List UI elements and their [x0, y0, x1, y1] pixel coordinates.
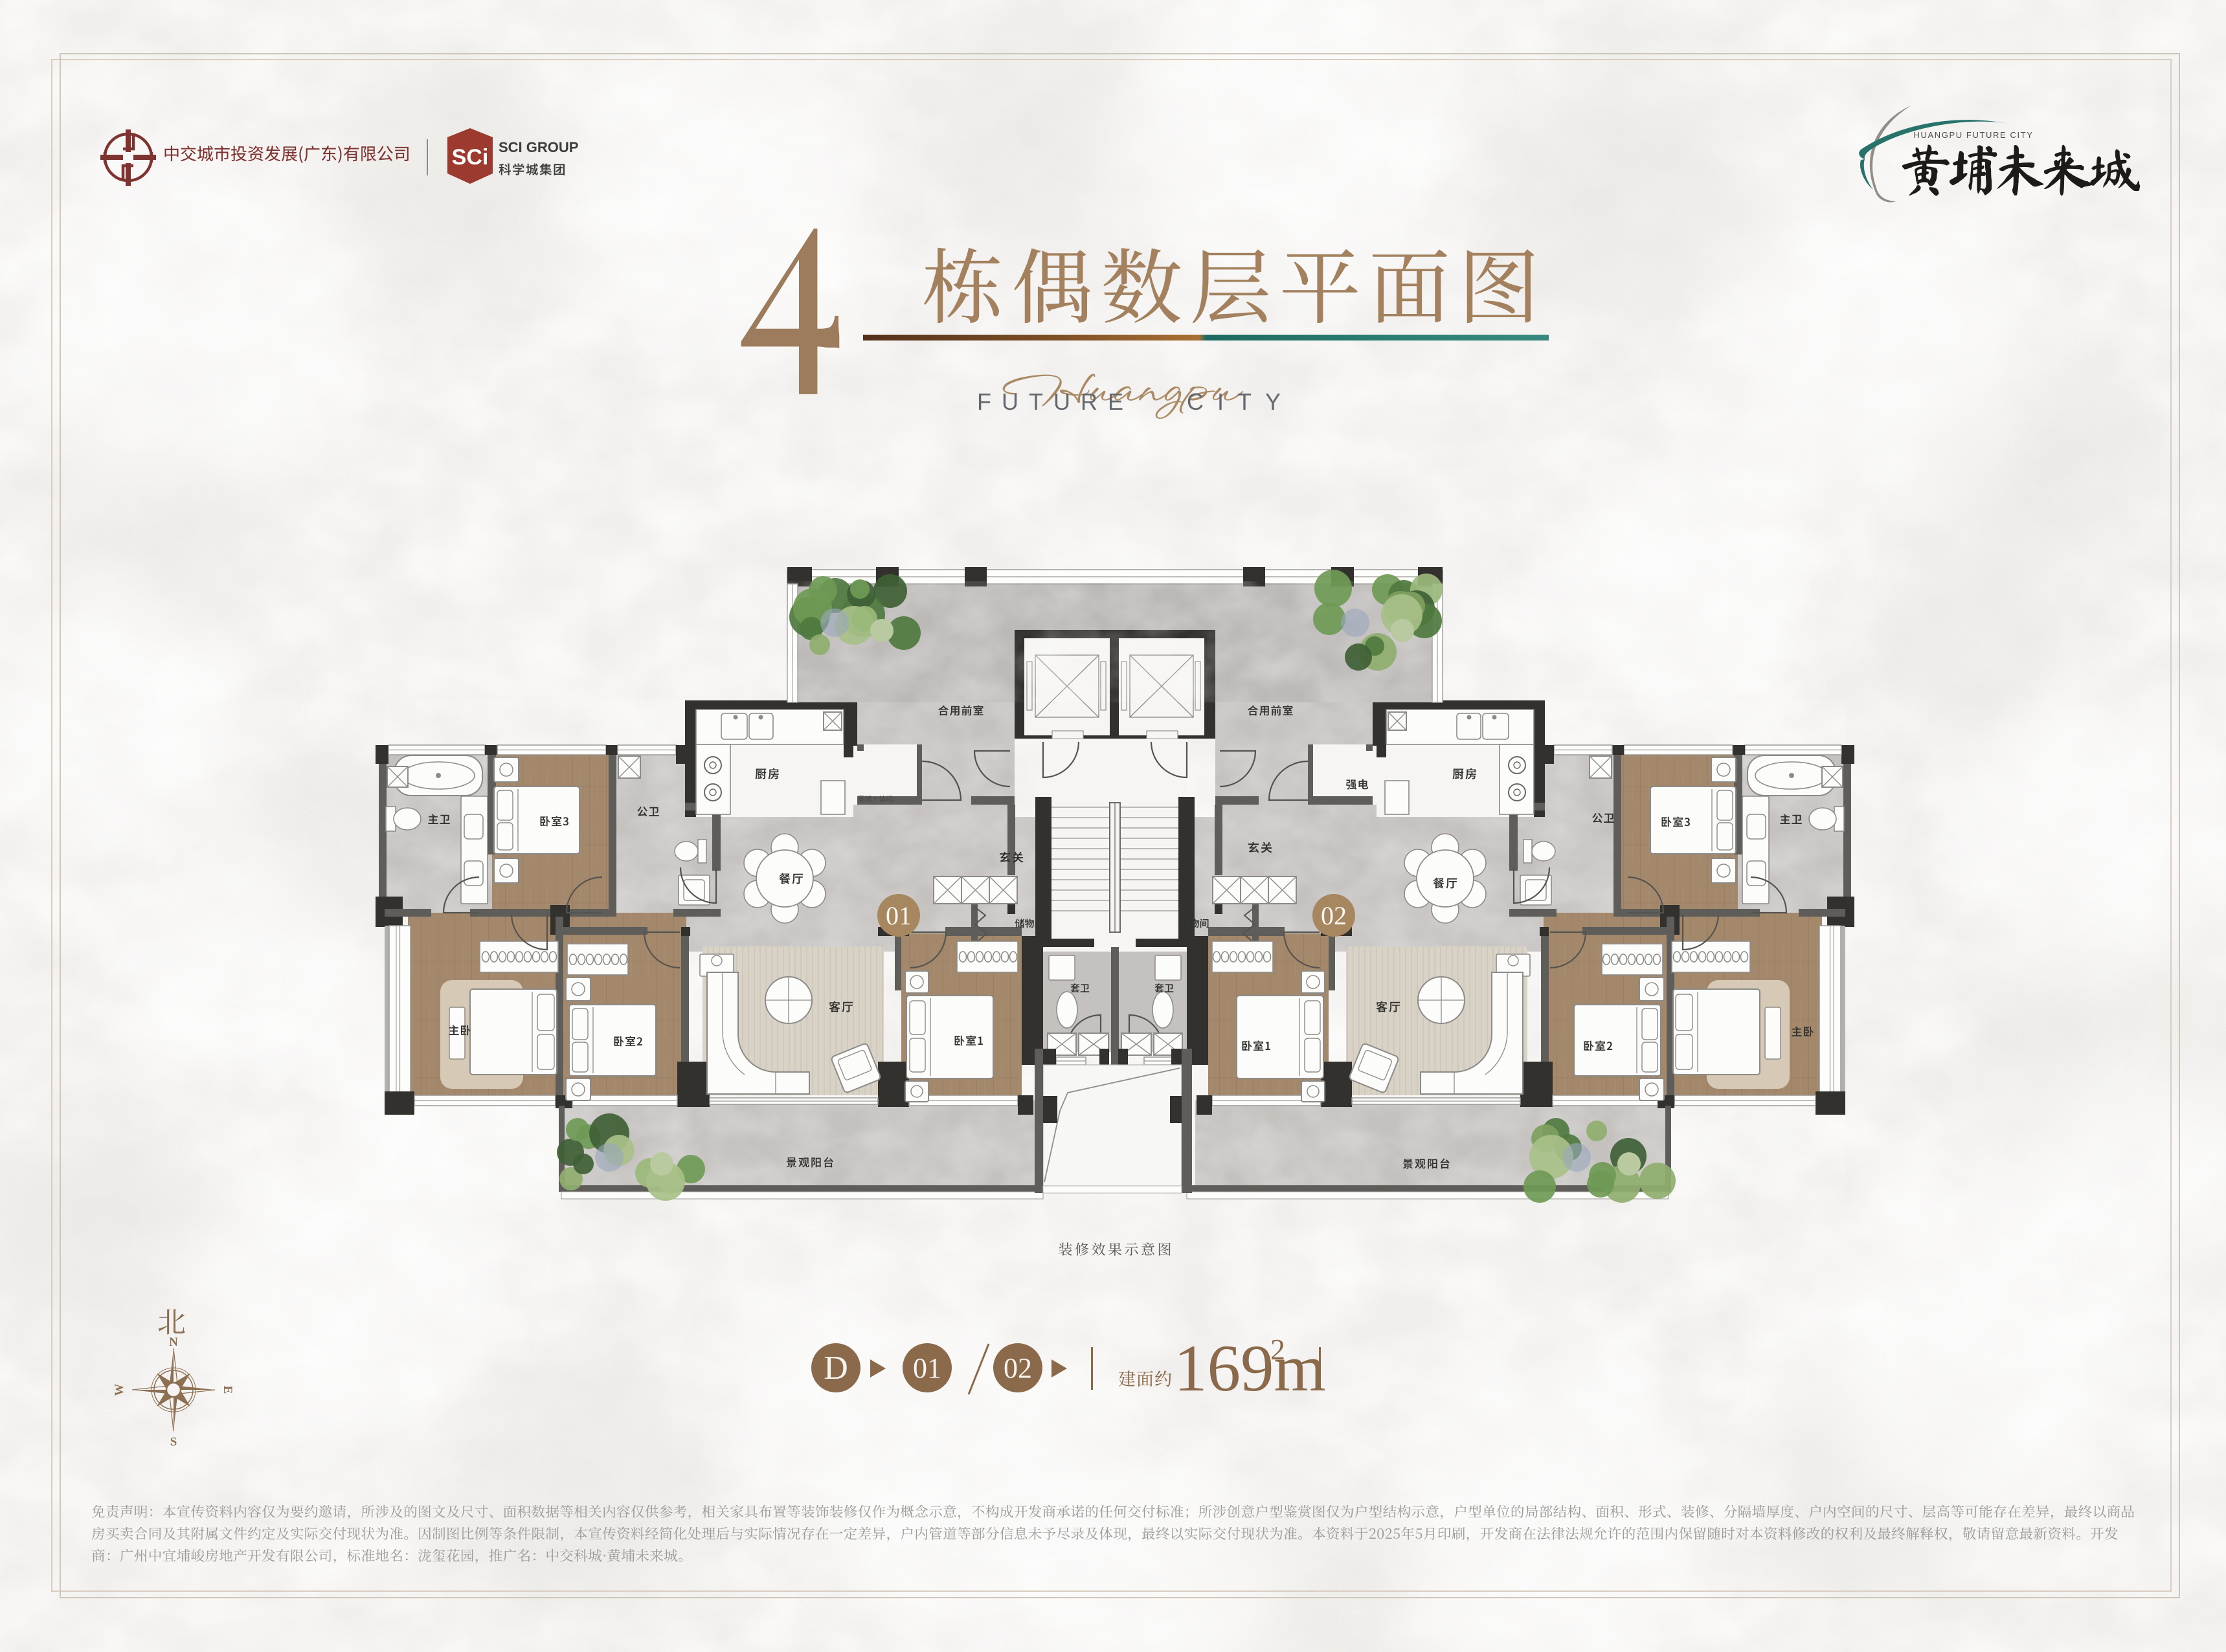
svg-text:CITY: CITY	[1187, 388, 1294, 415]
svg-text:SCi: SCi	[452, 145, 489, 170]
svg-text:01: 01	[913, 1352, 941, 1384]
svg-text:01: 01	[886, 901, 912, 930]
svg-text:FUTURE: FUTURE	[977, 388, 1134, 415]
svg-text:SCI GROUP: SCI GROUP	[499, 139, 578, 155]
svg-text:2: 2	[1270, 1333, 1285, 1366]
svg-text:E: E	[221, 1386, 234, 1394]
svg-text:169m: 169m	[1174, 1332, 1326, 1405]
svg-text:02: 02	[1004, 1352, 1032, 1384]
svg-text:02: 02	[1321, 901, 1347, 930]
svg-text:HUANGPU FUTURE CITY: HUANGPU FUTURE CITY	[1914, 130, 2034, 140]
svg-text:W: W	[113, 1384, 126, 1396]
svg-text:S: S	[170, 1435, 177, 1449]
svg-text:N: N	[169, 1335, 178, 1349]
svg-text:D: D	[824, 1350, 848, 1387]
